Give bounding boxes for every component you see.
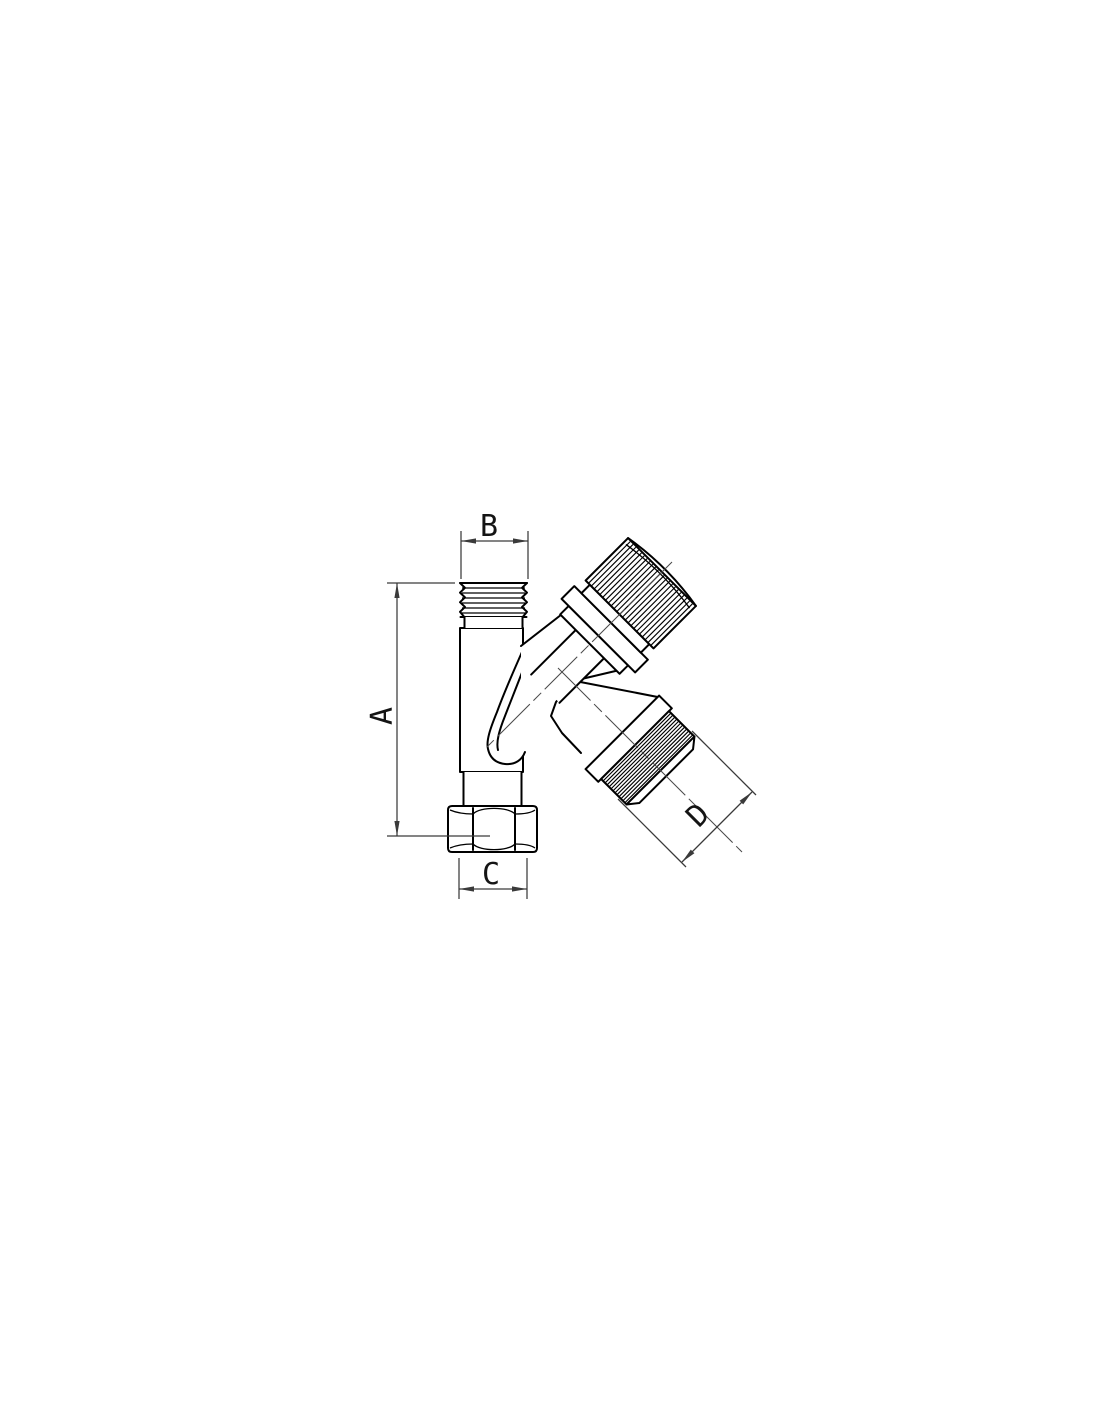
valve-technical-drawing: B A C D [0, 0, 1100, 1422]
lower-collar [463, 772, 522, 806]
dimension-label-a: A [365, 707, 400, 725]
dimension-label-b: B [480, 509, 498, 544]
hex-nut [448, 806, 537, 852]
dimension-label-d: D [680, 797, 718, 835]
inlet-collar [464, 617, 522, 628]
dimension-b: B [461, 509, 528, 579]
dimension-c: C [459, 857, 527, 899]
inlet-thread [460, 583, 527, 628]
page: B A C D [0, 0, 1100, 1422]
dimension-label-c: C [482, 857, 500, 892]
